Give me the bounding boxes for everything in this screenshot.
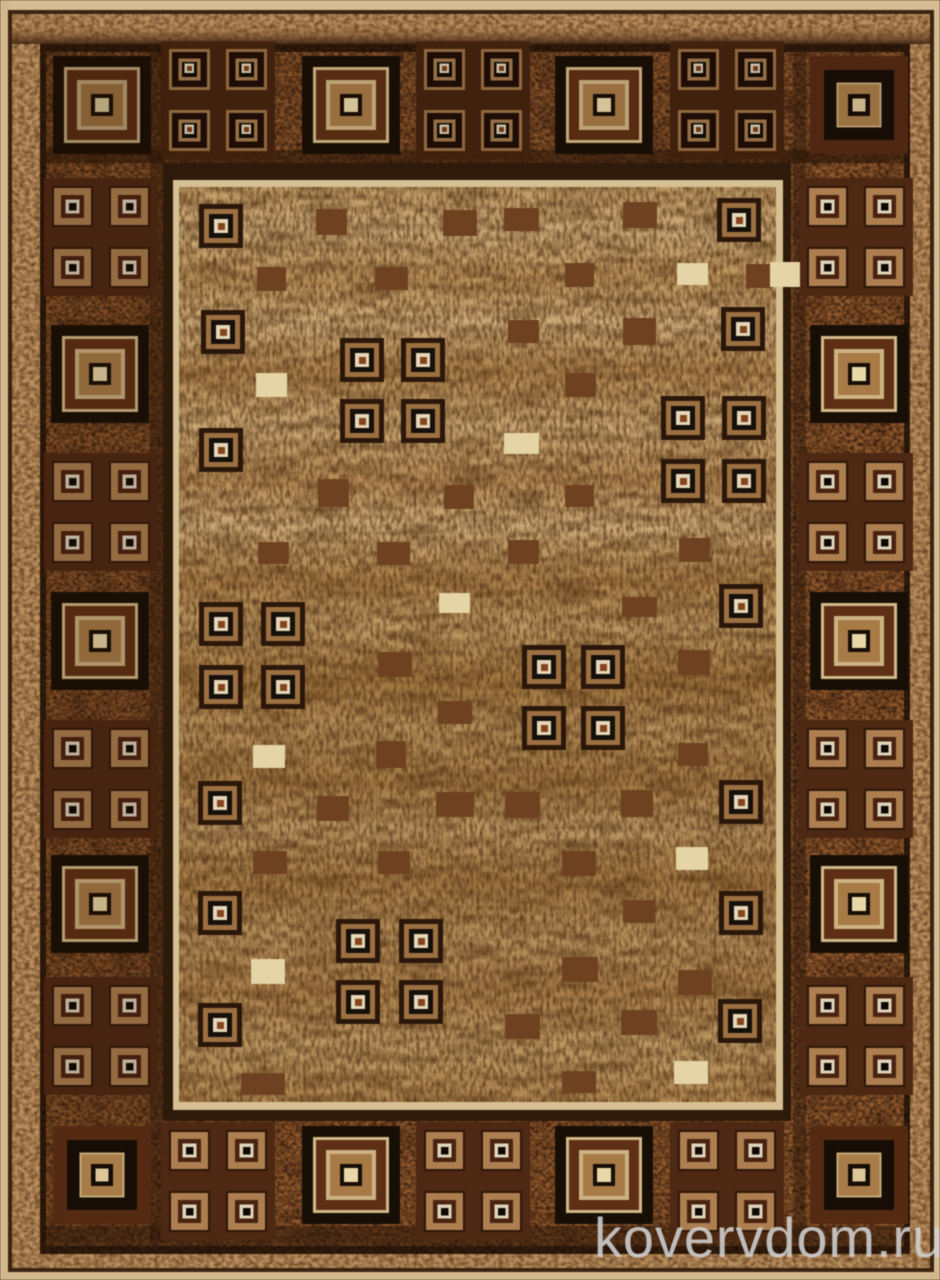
svg-text:kovervdom.ru: kovervdom.ru xyxy=(594,1206,940,1269)
